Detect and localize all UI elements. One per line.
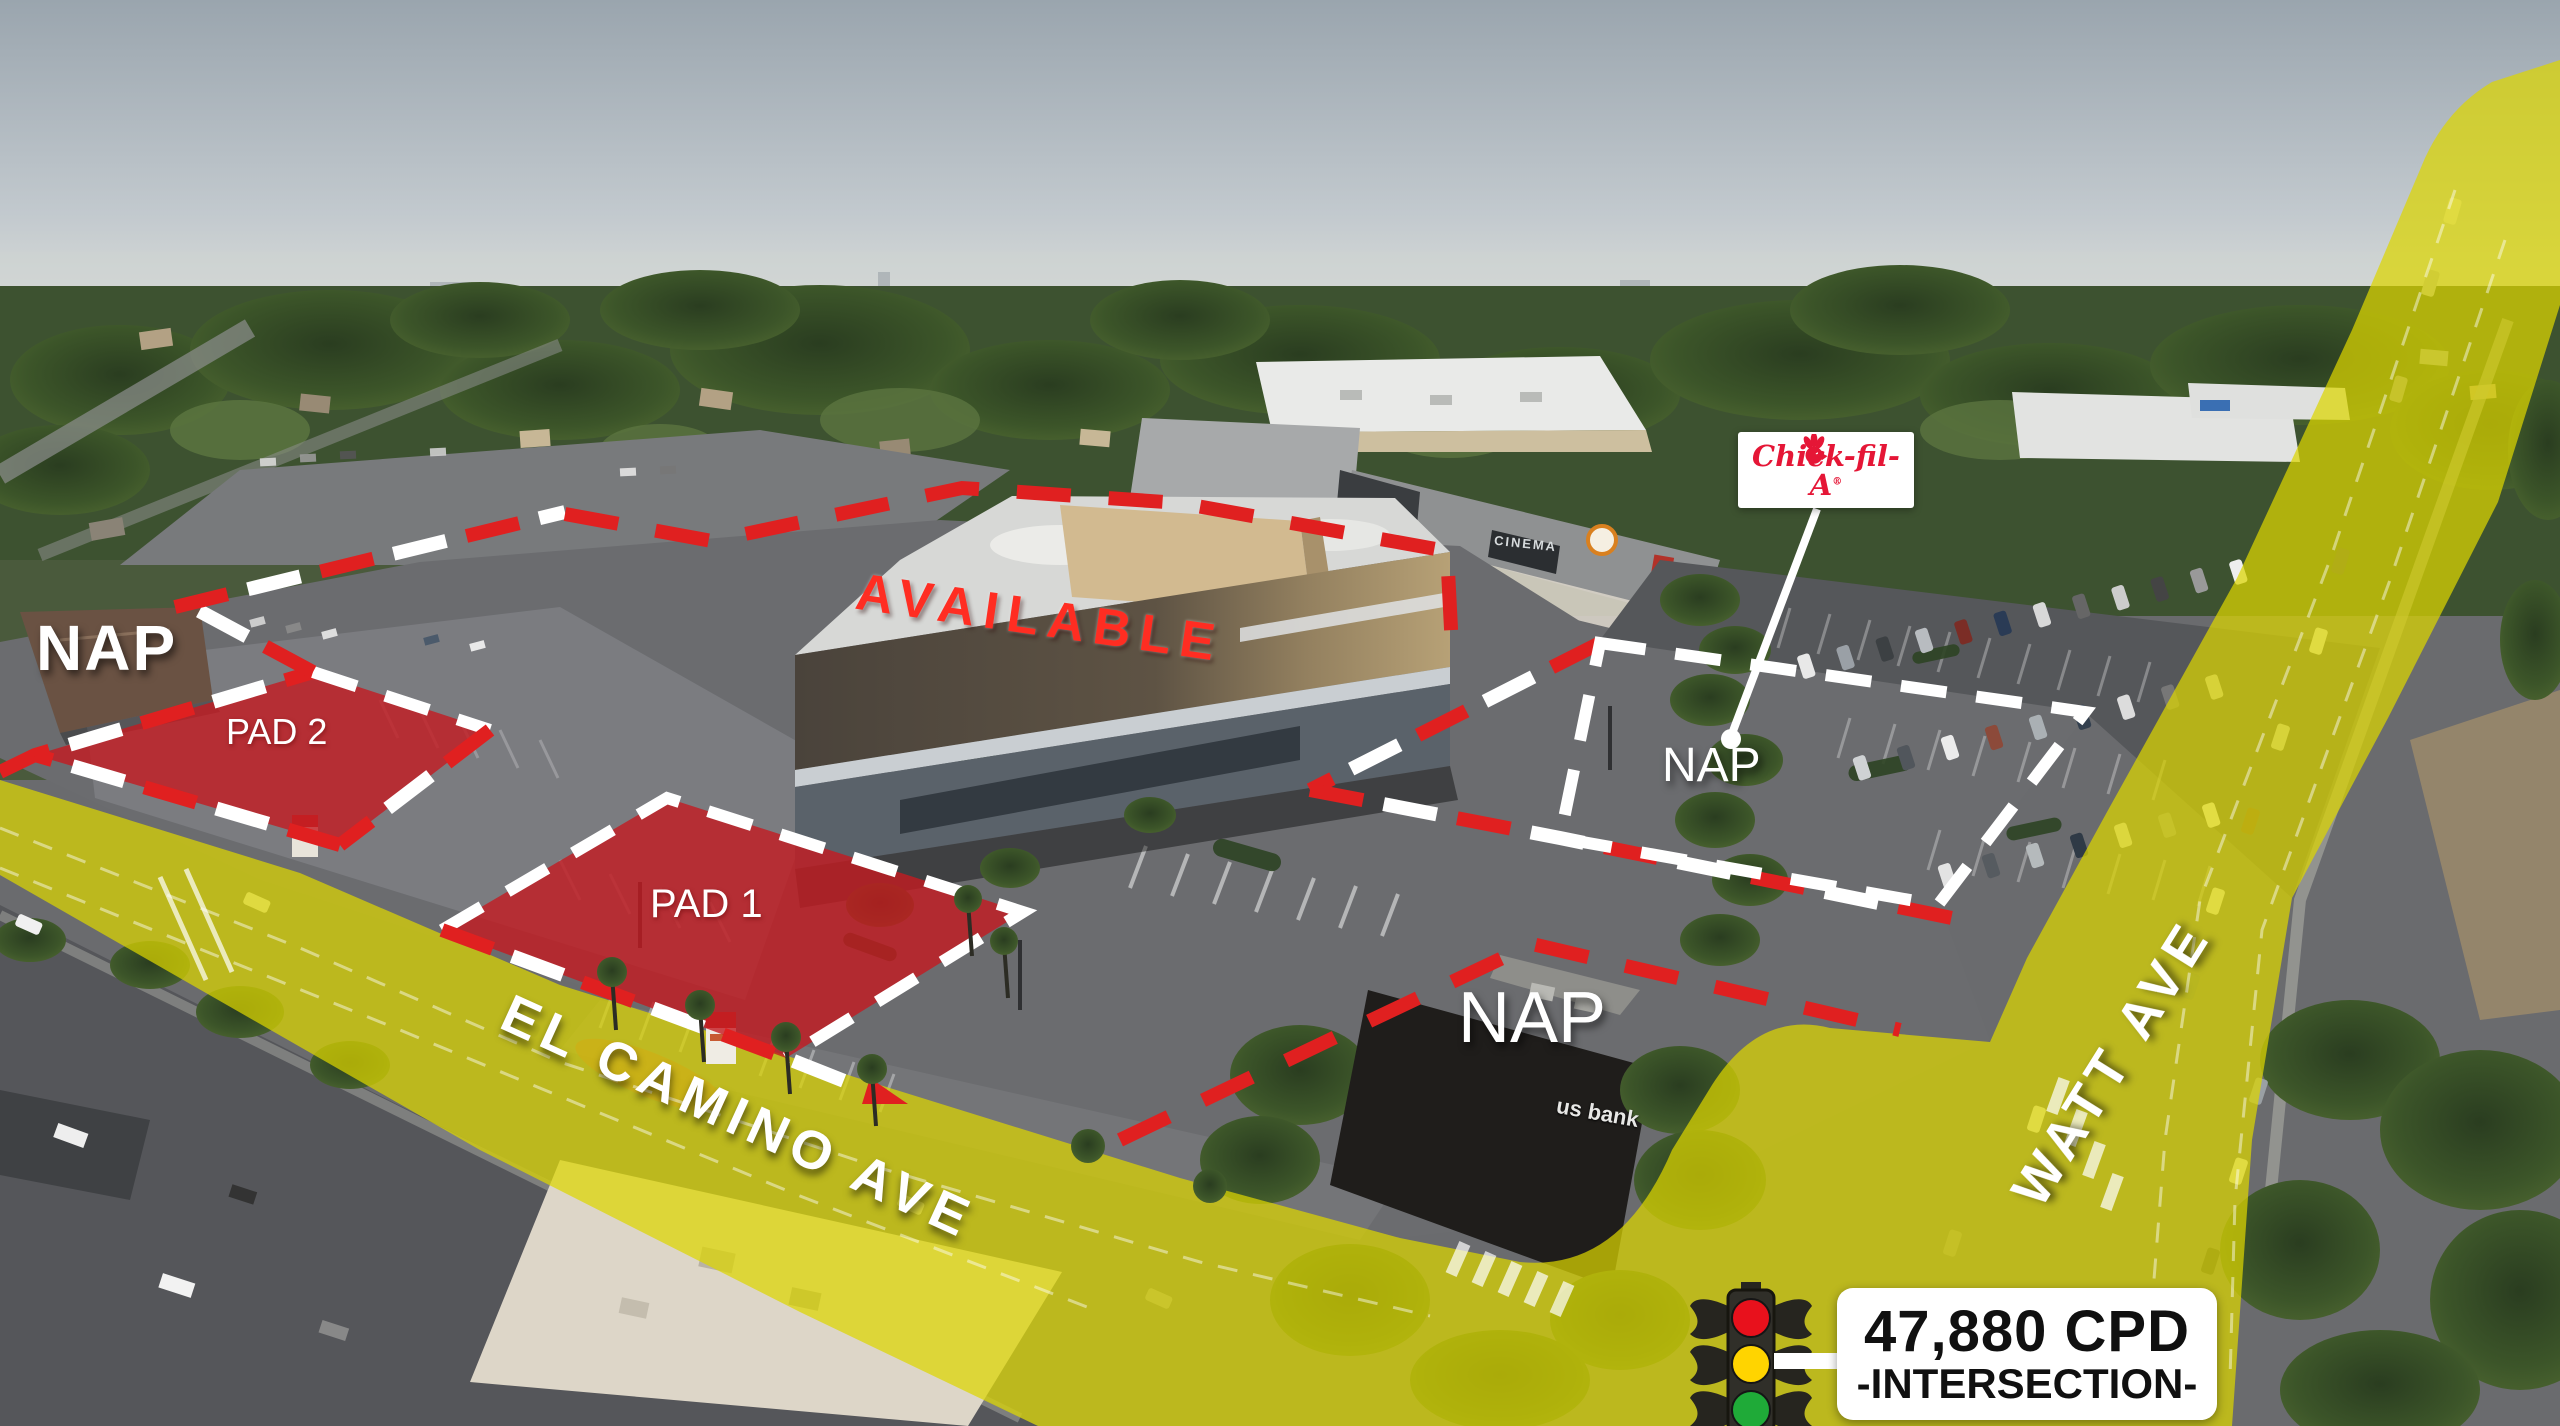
pad-2-label: PAD 2 [226, 714, 327, 750]
aerial-photo-graphics [0, 0, 2560, 1426]
chick-fil-a-callout-box: Chick-fil-A® [1738, 432, 1914, 508]
traffic-count-callout: 47,880 CPD -INTERSECTION- [1837, 1288, 2217, 1420]
chick-fil-a-logo: Chick-fil-A® [1738, 442, 1914, 500]
sky [0, 0, 2560, 305]
aerial-site-map: NAP PAD 2 PAD 1 NAP NAP AVAILABLE EL CAM… [0, 0, 2560, 1426]
traffic-count-type: -INTERSECTION- [1857, 1363, 2198, 1405]
pad-1-label: PAD 1 [650, 884, 763, 924]
traffic-count-value: 47,880 CPD [1864, 1303, 2190, 1361]
callout-connector [1774, 1353, 1840, 1369]
nap-label-bank: NAP [1458, 982, 1606, 1054]
nap-label-center: NAP [1662, 742, 1761, 790]
nap-label-top-left: NAP [36, 616, 177, 680]
